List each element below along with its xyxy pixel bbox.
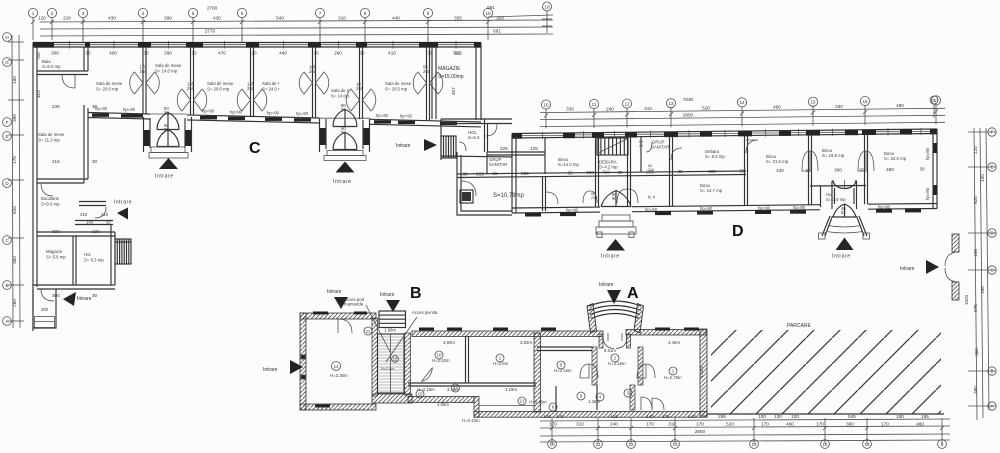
svg-text:691: 691 xyxy=(487,5,495,10)
svg-text:Bucatarie: Bucatarie xyxy=(41,196,60,201)
svg-text:H=3.18m: H=3.18m xyxy=(529,400,547,405)
svg-text:330: 330 xyxy=(835,104,843,109)
svg-text:S=15.00mp: S=15.00mp xyxy=(438,74,464,80)
svg-text:30: 30 xyxy=(191,51,197,56)
svg-text:355: 355 xyxy=(454,16,462,21)
svg-text:300: 300 xyxy=(41,307,49,312)
svg-text:430: 430 xyxy=(108,16,116,21)
svg-text:H: H xyxy=(5,35,8,40)
svg-text:15: 15 xyxy=(810,100,816,105)
svg-text:hp=90: hp=90 xyxy=(376,113,389,118)
svg-text:8.51m: 8.51m xyxy=(604,348,616,353)
svg-text:90: 90 xyxy=(341,130,346,135)
svg-text:S= 14.0 n: S= 14.0 n xyxy=(331,94,350,99)
svg-text:6: 6 xyxy=(941,442,944,447)
svg-text:Sala de r: Sala de r xyxy=(262,81,280,86)
svg-text:52: 52 xyxy=(841,210,846,215)
svg-text:490: 490 xyxy=(708,169,716,174)
svg-text:300: 300 xyxy=(52,229,60,234)
svg-text:S= 14.7 mp: S= 14.7 mp xyxy=(700,188,723,193)
svg-text:hp=90: hp=90 xyxy=(296,111,309,116)
svg-text:15: 15 xyxy=(393,357,398,362)
svg-text:H=2.8m: H=2.8m xyxy=(381,367,394,371)
svg-text:240: 240 xyxy=(610,422,618,427)
svg-text:S=9.0 mp: S=9.0 mp xyxy=(41,202,60,207)
svg-text:mansarda: mansarda xyxy=(344,302,364,307)
svg-text:14: 14 xyxy=(751,442,757,447)
svg-text:430: 430 xyxy=(776,168,784,173)
svg-text:Intrare: Intrare xyxy=(601,254,620,260)
svg-text:30: 30 xyxy=(739,169,745,174)
svg-text:250: 250 xyxy=(140,69,148,74)
svg-text:30: 30 xyxy=(85,51,91,56)
svg-text:2: 2 xyxy=(51,11,54,16)
svg-text:hp=90: hp=90 xyxy=(123,107,136,112)
svg-text:4: 4 xyxy=(142,11,145,16)
svg-text:430: 430 xyxy=(213,16,221,21)
svg-text:Magazie: Magazie xyxy=(46,249,63,254)
svg-text:1.36m: 1.36m xyxy=(588,399,600,404)
svg-text:310: 310 xyxy=(338,16,346,21)
svg-text:440: 440 xyxy=(392,16,400,21)
svg-text:H=0.42m: H=0.42m xyxy=(462,418,480,423)
svg-text:3.18m: 3.18m xyxy=(447,387,459,392)
svg-text:710: 710 xyxy=(602,170,610,175)
svg-text:300: 300 xyxy=(834,168,842,173)
svg-text:1.96m: 1.96m xyxy=(384,328,396,333)
svg-text:400: 400 xyxy=(109,51,117,56)
svg-text:1: 1 xyxy=(32,11,35,16)
svg-text:6: 6 xyxy=(241,11,244,16)
svg-text:210: 210 xyxy=(80,212,88,217)
svg-text:4.05m: 4.05m xyxy=(437,402,449,407)
svg-text:225: 225 xyxy=(500,146,508,151)
svg-text:620: 620 xyxy=(973,196,978,204)
svg-text:Sala de mese: Sala de mese xyxy=(207,81,234,86)
svg-text:S= 6.3 mp: S= 6.3 mp xyxy=(84,258,104,263)
svg-text:30: 30 xyxy=(462,172,468,177)
svg-text:975: 975 xyxy=(973,304,978,312)
svg-text:100: 100 xyxy=(980,174,985,182)
svg-text:460: 460 xyxy=(773,105,781,110)
svg-text:20: 20 xyxy=(251,51,257,56)
svg-text:B: B xyxy=(5,283,8,288)
svg-text:20: 20 xyxy=(639,144,643,148)
svg-text:S= 20.0 mp: S= 20.0 mp xyxy=(207,87,230,92)
svg-text:hp=90: hp=90 xyxy=(400,114,413,119)
svg-text:hp=90: hp=90 xyxy=(700,206,713,211)
svg-text:Intrare: Intrare xyxy=(900,266,915,272)
svg-text:520: 520 xyxy=(726,422,734,427)
svg-text:7: 7 xyxy=(319,11,322,16)
svg-text:390: 390 xyxy=(164,16,172,21)
svg-text:Intrare: Intrare xyxy=(77,296,92,302)
svg-text:8: 8 xyxy=(364,11,367,16)
svg-text:470: 470 xyxy=(218,51,226,56)
svg-text:SANITAR: SANITAR xyxy=(489,162,507,167)
svg-text:295: 295 xyxy=(718,414,726,419)
svg-text:170: 170 xyxy=(12,156,17,164)
svg-text:3.18m: 3.18m xyxy=(505,387,517,392)
svg-text:250: 250 xyxy=(591,196,597,200)
svg-text:180: 180 xyxy=(12,76,17,84)
svg-text:14: 14 xyxy=(334,364,339,369)
svg-text:30: 30 xyxy=(359,51,365,56)
svg-text:hp=90: hp=90 xyxy=(925,187,930,200)
svg-text:PARCARE: PARCARE xyxy=(787,323,811,329)
svg-text:360: 360 xyxy=(12,256,17,264)
svg-text:H=3.16m: H=3.16m xyxy=(608,361,626,366)
svg-text:565: 565 xyxy=(476,171,484,176)
svg-text:H=3.16m: H=3.16m xyxy=(554,368,572,373)
svg-text:hp=90: hp=90 xyxy=(267,110,280,115)
svg-text:S= 3.9 mp: S= 3.9 mp xyxy=(826,197,846,202)
svg-text:240: 240 xyxy=(606,106,614,111)
svg-text:100: 100 xyxy=(791,414,799,419)
svg-text:SANITAR: SANITAR xyxy=(651,145,669,150)
svg-text:hp=90: hp=90 xyxy=(758,206,771,211)
svg-text:Intrare: Intrare xyxy=(114,200,132,206)
svg-text:Intrare: Intrare xyxy=(832,254,851,260)
svg-text:322: 322 xyxy=(453,51,461,56)
svg-text:10: 10 xyxy=(485,11,491,16)
svg-text:Sala de mese: Sala de mese xyxy=(38,132,65,137)
svg-text:170: 170 xyxy=(881,422,889,427)
svg-text:10: 10 xyxy=(437,353,442,358)
svg-text:540: 540 xyxy=(276,16,284,21)
svg-text:S= 11.3 mp: S= 11.3 mp xyxy=(38,138,60,143)
svg-text:140: 140 xyxy=(646,414,654,419)
svg-text:S=14.0 mp: S=14.0 mp xyxy=(558,162,580,167)
svg-text:100: 100 xyxy=(980,286,985,294)
svg-text:15: 15 xyxy=(418,392,423,397)
svg-text:hp=90: hp=90 xyxy=(925,147,930,160)
svg-text:G: G xyxy=(5,60,9,65)
svg-text:30: 30 xyxy=(919,167,925,172)
svg-text:170: 170 xyxy=(646,422,654,427)
svg-text:250: 250 xyxy=(423,69,431,74)
svg-text:E: E xyxy=(990,165,993,170)
svg-text:12: 12 xyxy=(624,101,630,106)
svg-text:275: 275 xyxy=(662,414,670,419)
svg-text:Intrare: Intrare xyxy=(263,367,278,373)
svg-text:369: 369 xyxy=(496,16,504,21)
svg-text:9: 9 xyxy=(427,11,430,16)
svg-text:2850: 2850 xyxy=(683,113,694,118)
svg-text:480: 480 xyxy=(896,103,904,108)
svg-text:tc 4: tc 4 xyxy=(648,195,656,200)
svg-text:170: 170 xyxy=(816,422,824,427)
svg-text:236: 236 xyxy=(52,104,60,109)
svg-text:Intrare: Intrare xyxy=(599,282,614,288)
svg-text:hp=90: hp=90 xyxy=(793,205,806,210)
svg-text:265: 265 xyxy=(646,170,654,175)
svg-text:100: 100 xyxy=(973,249,978,257)
svg-text:520: 520 xyxy=(702,105,710,110)
svg-text:15: 15 xyxy=(822,442,828,447)
svg-text:Acces pivnita: Acces pivnita xyxy=(412,310,438,315)
svg-text:5: 5 xyxy=(192,11,195,16)
svg-text:S= 22.5 mp: S= 22.5 mp xyxy=(884,156,907,161)
svg-text:7030: 7030 xyxy=(683,97,694,102)
svg-text:13: 13 xyxy=(520,399,525,404)
svg-text:410: 410 xyxy=(388,51,396,56)
svg-text:G: G xyxy=(932,98,936,103)
svg-text:300: 300 xyxy=(52,293,60,298)
svg-text:11: 11 xyxy=(596,442,601,447)
svg-text:216: 216 xyxy=(52,159,60,164)
svg-text:260: 260 xyxy=(12,299,17,307)
svg-text:691: 691 xyxy=(493,29,501,34)
svg-text:30: 30 xyxy=(92,293,98,298)
svg-text:30: 30 xyxy=(92,159,98,164)
svg-text:H=2.62m: H=2.62m xyxy=(432,358,450,363)
svg-text:140: 140 xyxy=(556,414,564,419)
svg-text:F: F xyxy=(991,130,994,135)
svg-text:10: 10 xyxy=(543,102,549,107)
svg-text:S= 20.0 mp: S= 20.0 mp xyxy=(96,87,119,92)
svg-text:F: F xyxy=(6,120,9,125)
svg-text:S= 20.5 mp: S= 20.5 mp xyxy=(385,87,408,92)
svg-text:170: 170 xyxy=(761,422,769,427)
svg-text:3.94m: 3.94m xyxy=(699,366,704,378)
svg-text:Intrare: Intrare xyxy=(155,174,174,180)
svg-text:310: 310 xyxy=(668,422,676,427)
svg-text:100: 100 xyxy=(758,414,766,419)
svg-text:339: 339 xyxy=(521,171,529,176)
svg-text:310: 310 xyxy=(576,422,584,427)
svg-text:Hol: Hol xyxy=(84,252,90,257)
svg-text:50: 50 xyxy=(859,167,865,172)
svg-text:330: 330 xyxy=(566,107,574,112)
svg-text:250: 250 xyxy=(187,86,195,91)
svg-text:390: 390 xyxy=(586,170,594,175)
svg-text:390: 390 xyxy=(846,422,854,427)
svg-text:10: 10 xyxy=(549,442,555,447)
svg-text:30: 30 xyxy=(106,220,111,225)
svg-text:30: 30 xyxy=(313,51,319,56)
svg-text:2700: 2700 xyxy=(207,6,218,11)
svg-text:H=3.18m: H=3.18m xyxy=(417,387,435,392)
svg-text:545: 545 xyxy=(848,414,856,419)
svg-text:410: 410 xyxy=(610,414,618,419)
svg-text:90: 90 xyxy=(612,196,617,201)
svg-text:480: 480 xyxy=(916,422,924,427)
svg-text:2770: 2770 xyxy=(205,29,216,34)
svg-text:D: D xyxy=(732,223,744,240)
svg-text:B: B xyxy=(410,285,422,302)
svg-text:10: 10 xyxy=(544,5,550,10)
svg-text:440: 440 xyxy=(279,51,287,56)
svg-text:Sala de mese: Sala de mese xyxy=(385,81,412,86)
svg-text:14: 14 xyxy=(739,100,745,105)
svg-text:S= 5.9 mp: S= 5.9 mp xyxy=(46,255,66,260)
svg-text:130: 130 xyxy=(774,414,782,419)
svg-text:457: 457 xyxy=(451,87,456,95)
svg-text:12: 12 xyxy=(628,442,634,447)
svg-text:S= 21.5 mp: S= 21.5 mp xyxy=(766,159,789,164)
svg-text:30: 30 xyxy=(143,51,149,56)
svg-text:180: 180 xyxy=(896,414,904,419)
svg-text:3: 3 xyxy=(82,11,85,16)
svg-text:450: 450 xyxy=(886,167,894,172)
svg-text:B: B xyxy=(990,369,993,374)
svg-text:360: 360 xyxy=(974,348,979,356)
svg-text:90: 90 xyxy=(164,110,169,115)
svg-text:Sala de mese: Sala de mese xyxy=(155,63,182,68)
svg-text:4.40m: 4.40m xyxy=(668,340,680,345)
svg-text:2650: 2650 xyxy=(695,429,706,434)
svg-text:250: 250 xyxy=(356,86,364,91)
svg-text:C: C xyxy=(249,140,261,157)
svg-text:E: E xyxy=(5,134,8,139)
svg-text:Sala de n: Sala de n xyxy=(331,88,350,93)
svg-text:S=6.3: S=6.3 xyxy=(468,135,480,140)
svg-text:120: 120 xyxy=(38,16,46,21)
svg-text:hp=50: hp=50 xyxy=(645,207,658,212)
svg-text:250: 250 xyxy=(309,69,317,74)
svg-text:S= 24.0 r: S= 24.0 r xyxy=(262,87,280,92)
svg-text:16: 16 xyxy=(864,442,870,447)
svg-text:125: 125 xyxy=(530,146,538,151)
svg-text:11: 11 xyxy=(366,329,371,334)
svg-text:90: 90 xyxy=(341,107,346,112)
svg-text:120: 120 xyxy=(973,146,978,154)
svg-text:260: 260 xyxy=(334,51,342,56)
svg-text:90: 90 xyxy=(164,127,169,132)
svg-text:300: 300 xyxy=(51,51,59,56)
svg-text:H=2.6m: H=2.6m xyxy=(493,361,509,366)
svg-text:15: 15 xyxy=(492,171,498,176)
svg-text:hp=90: hp=90 xyxy=(878,204,891,209)
svg-text:H=2.78m: H=2.78m xyxy=(664,375,682,380)
svg-text:MAGAZIE: MAGAZIE xyxy=(438,66,461,72)
svg-text:1920: 1920 xyxy=(964,294,969,305)
svg-text:11: 11 xyxy=(592,102,597,107)
svg-text:H=2.36m: H=2.36m xyxy=(330,373,348,378)
svg-text:Sala de mese: Sala de mese xyxy=(96,81,123,86)
svg-text:30: 30 xyxy=(677,169,683,174)
svg-text:100: 100 xyxy=(543,414,551,419)
svg-text:30: 30 xyxy=(92,104,98,109)
svg-text:130: 130 xyxy=(92,229,100,234)
svg-text:390: 390 xyxy=(12,114,17,122)
svg-text:170: 170 xyxy=(696,422,704,427)
svg-text:S= 8.3 mp: S= 8.3 mp xyxy=(705,154,725,159)
svg-text:460: 460 xyxy=(786,422,794,427)
svg-text:140: 140 xyxy=(688,414,696,419)
svg-text:195: 195 xyxy=(921,414,929,419)
svg-text:Intrare: Intrare xyxy=(327,289,342,295)
svg-text:620: 620 xyxy=(12,206,17,214)
svg-text:Intrare: Intrare xyxy=(333,179,352,185)
svg-text:170: 170 xyxy=(549,422,557,427)
svg-text:140: 140 xyxy=(86,220,94,225)
svg-text:16: 16 xyxy=(862,99,868,104)
svg-text:S=10.79mp: S=10.79mp xyxy=(493,193,525,199)
svg-text:3.90m: 3.90m xyxy=(443,340,455,345)
svg-text:210: 210 xyxy=(101,212,109,217)
svg-text:hp=90: hp=90 xyxy=(566,208,579,213)
svg-text:S= 14.0 mp: S= 14.0 mp xyxy=(155,69,178,74)
svg-text:13: 13 xyxy=(672,442,678,447)
svg-text:A: A xyxy=(627,285,639,302)
svg-text:3.83m: 3.83m xyxy=(520,340,532,345)
svg-text:280: 280 xyxy=(164,51,172,56)
svg-text:210: 210 xyxy=(63,16,71,21)
svg-text:390: 390 xyxy=(973,386,978,394)
svg-text:S= 19.8 mp: S= 19.8 mp xyxy=(822,153,845,158)
svg-text:S=6.0 mp: S=6.0 mp xyxy=(42,64,61,69)
svg-text:13: 13 xyxy=(668,101,674,106)
svg-text:30: 30 xyxy=(617,170,623,175)
svg-text:250: 250 xyxy=(247,86,255,91)
svg-text:310: 310 xyxy=(644,106,652,111)
svg-text:Intrare: Intrare xyxy=(380,292,395,298)
svg-text:Intrare: Intrare xyxy=(396,143,411,149)
svg-text:30: 30 xyxy=(567,170,573,175)
